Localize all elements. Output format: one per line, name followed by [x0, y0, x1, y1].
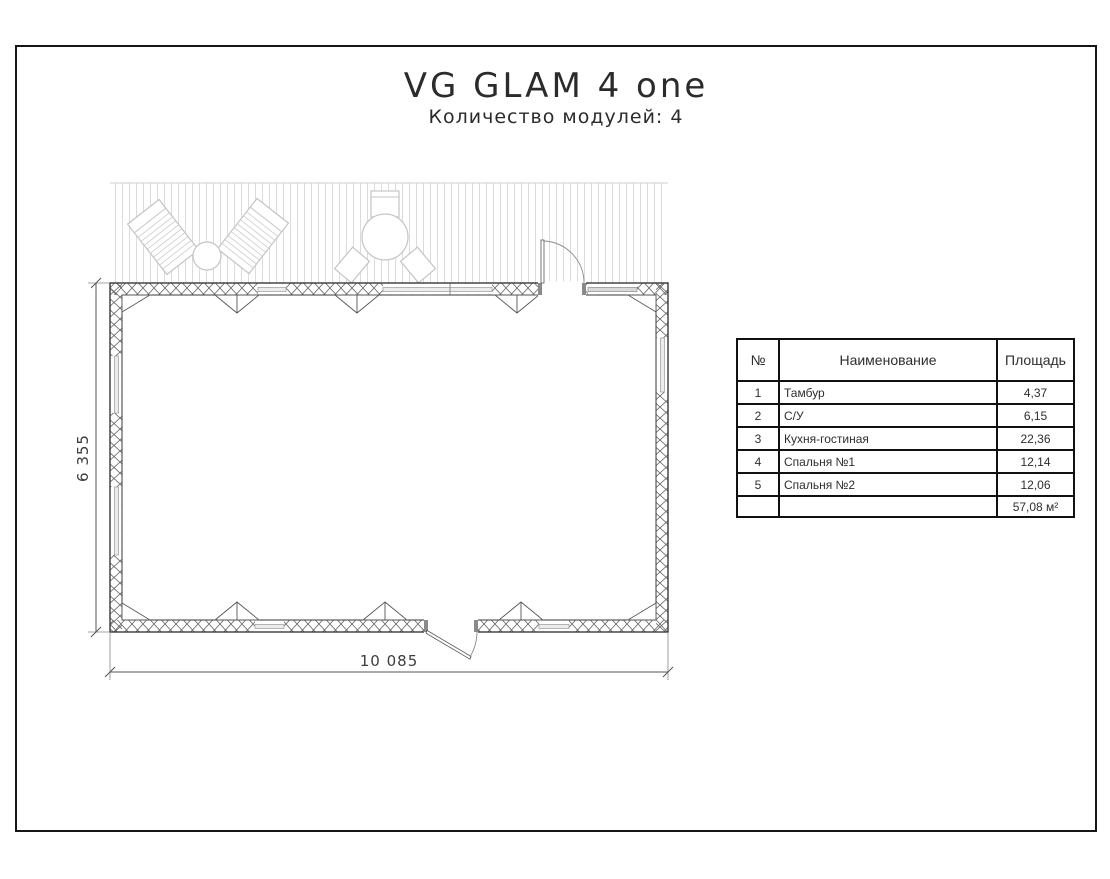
- windows: [111, 283, 668, 631]
- table-header-row: № Наименование Площадь: [737, 339, 1074, 381]
- row-number: 4: [737, 450, 779, 473]
- dimension-width-label: 10 085: [360, 652, 419, 670]
- table-row: 3 Кухня-гостиная 22,36: [737, 427, 1074, 450]
- header-name: Наименование: [779, 339, 997, 381]
- walls: [110, 283, 668, 632]
- table-total-row: 57,08 м²: [737, 496, 1074, 517]
- row-number: 3: [737, 427, 779, 450]
- row-area: 6,15: [997, 404, 1074, 427]
- table-row: 1 Тамбур 4,37: [737, 381, 1074, 404]
- row-number: 2: [737, 404, 779, 427]
- row-area: 4,37: [997, 381, 1074, 404]
- row-name: Спальня №1: [779, 450, 997, 473]
- row-number: 1: [737, 381, 779, 404]
- total-area-value: 57,08 м²: [997, 496, 1074, 517]
- header-area: Площадь: [997, 339, 1074, 381]
- table-row: 2 С/У 6,15: [737, 404, 1074, 427]
- total-name-cell: [779, 496, 997, 517]
- structural-marks: [122, 295, 656, 620]
- row-area: 22,36: [997, 427, 1074, 450]
- row-number: 5: [737, 473, 779, 496]
- entrance-door-bottom: [424, 618, 478, 659]
- row-name: Кухня-гостиная: [779, 427, 997, 450]
- row-name: Спальня №2: [779, 473, 997, 496]
- row-name: Тамбур: [779, 381, 997, 404]
- header-number: №: [737, 339, 779, 381]
- row-area: 12,14: [997, 450, 1074, 473]
- wall-outlines: [110, 283, 668, 632]
- row-name: С/У: [779, 404, 997, 427]
- area-table: № Наименование Площадь 1 Тамбур 4,37 2 С…: [736, 338, 1075, 518]
- row-area: 12,06: [997, 473, 1074, 496]
- round-table: [362, 214, 408, 260]
- dimension-height-label: 6 355: [74, 434, 92, 482]
- table-row: 4 Спальня №1 12,14: [737, 450, 1074, 473]
- total-number-cell: [737, 496, 779, 517]
- side-table: [193, 242, 221, 270]
- table-row: 5 Спальня №2 12,06: [737, 473, 1074, 496]
